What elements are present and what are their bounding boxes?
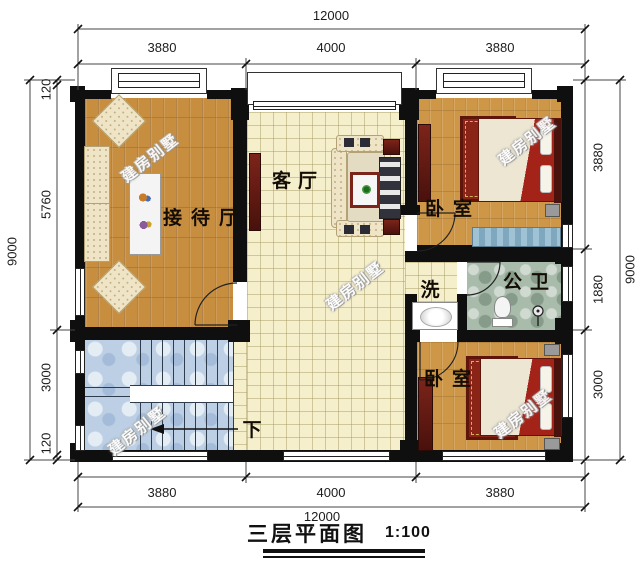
dim-right-seg-3: 3000 xyxy=(591,355,606,415)
stair-direction-arrow xyxy=(150,424,238,434)
living-room-label: 客厅 xyxy=(258,171,338,193)
stairs-down-label: 下 xyxy=(240,420,264,442)
dim-right-overall: 9000 xyxy=(623,240,638,300)
reception-label: 接待厅 xyxy=(135,208,275,230)
dim-top-overall: 12000 xyxy=(299,8,363,23)
caption-underline-thin xyxy=(263,556,425,558)
dim-bottom-seg-1: 3880 xyxy=(122,485,202,500)
dim-top-seg-2: 4000 xyxy=(291,40,371,55)
dim-right-seg-2: 1880 xyxy=(591,260,606,320)
bedroom-bottom-label: 卧室 xyxy=(412,369,492,391)
dim-bottom-seg-2: 4000 xyxy=(291,485,371,500)
bathroom-label: 公卫 xyxy=(494,272,566,294)
shower-icon xyxy=(533,306,543,326)
dim-right-seg-1: 3880 xyxy=(591,128,606,188)
dim-top-seg-3: 3880 xyxy=(460,40,540,55)
dim-left-overall: 9000 xyxy=(5,222,20,282)
floor-plan-canvas: 接待厅 客厅 卧室 卧室 洗 公卫 下 建房别墅 建房别墅 建房别墅 建房别墅 … xyxy=(0,0,640,566)
bedroom-top-label: 卧室 xyxy=(413,199,493,221)
plan-scale: 1:100 xyxy=(385,524,431,542)
dim-left-seg-3: 3000 xyxy=(39,348,54,408)
dim-bottom-seg-3: 3880 xyxy=(460,485,540,500)
dim-left-seg-2: 5760 xyxy=(39,175,54,235)
dim-top-seg-1: 3880 xyxy=(122,40,202,55)
plan-title: 三层平面图 xyxy=(247,518,367,548)
dim-left-seg-4: 120 xyxy=(39,414,54,474)
caption-underline-thick xyxy=(263,549,425,553)
wash-area-label: 洗 xyxy=(414,280,446,302)
dim-left-seg-1: 120 xyxy=(39,60,54,120)
